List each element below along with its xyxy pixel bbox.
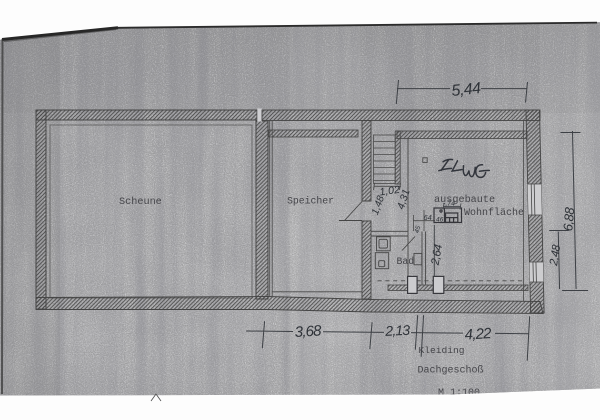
svg-text:2,13: 2,13 — [384, 322, 411, 339]
svg-text:Kleiding: Kleiding — [419, 345, 465, 356]
svg-text:Speicher: Speicher — [287, 196, 334, 207]
svg-text:Scheune: Scheune — [119, 196, 162, 208]
svg-text:4,22: 4,22 — [464, 325, 492, 344]
svg-text:3,68: 3,68 — [294, 322, 322, 341]
svg-text:Dachgeschoß: Dachgeschoß — [418, 365, 484, 377]
svg-text:64: 64 — [424, 213, 432, 222]
svg-text:5,44: 5,44 — [451, 80, 482, 100]
svg-text:46: 46 — [436, 217, 444, 224]
svg-text:6,88: 6,88 — [560, 206, 577, 232]
svg-text:Wohnfläche: Wohnfläche — [464, 207, 524, 219]
svg-text:M 1:100: M 1:100 — [438, 388, 480, 399]
svg-text:Bad: Bad — [397, 256, 415, 267]
svg-text:ausgebaute: ausgebaute — [434, 194, 495, 206]
